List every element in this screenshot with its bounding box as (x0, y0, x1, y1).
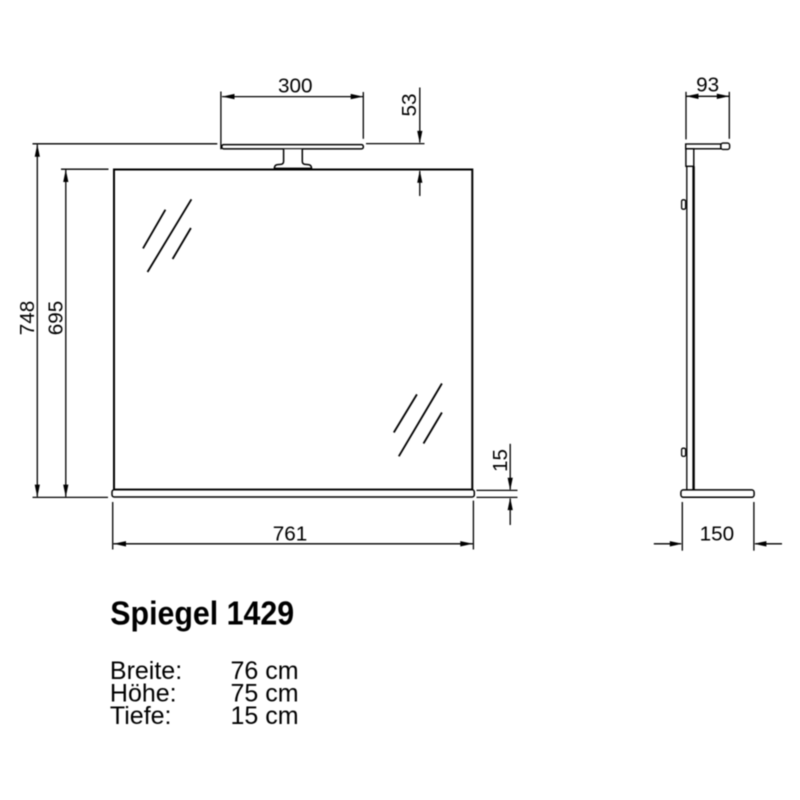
svg-text:695: 695 (45, 301, 68, 336)
svg-text:15 cm: 15 cm (231, 702, 299, 730)
svg-text:15: 15 (489, 449, 512, 472)
svg-text:300: 300 (278, 75, 313, 98)
svg-text:748: 748 (16, 301, 39, 336)
svg-text:761: 761 (273, 523, 308, 546)
svg-text:53: 53 (398, 93, 421, 116)
svg-text:93: 93 (696, 74, 719, 97)
svg-text:Spiegel 1429: Spiegel 1429 (110, 594, 294, 631)
svg-text:Tiefe:: Tiefe: (110, 702, 172, 730)
svg-text:150: 150 (700, 523, 735, 546)
